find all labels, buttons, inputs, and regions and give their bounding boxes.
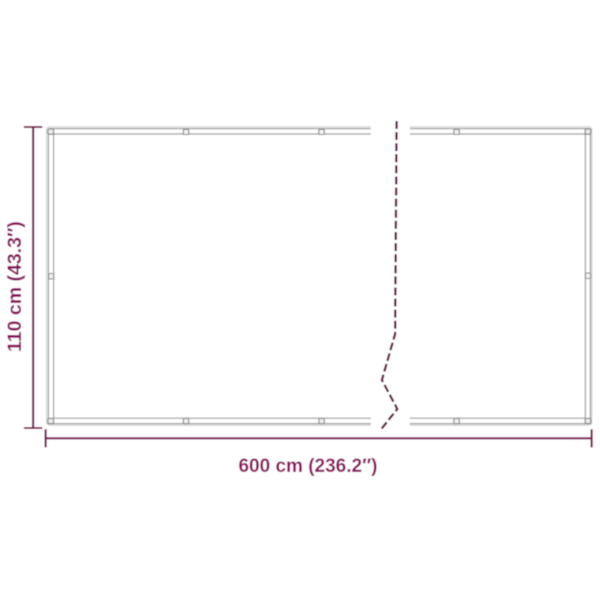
svg-text:110 cm (43.3″): 110 cm (43.3″) [4, 221, 26, 352]
svg-text:600 cm (236.2″): 600 cm (236.2″) [238, 456, 377, 477]
